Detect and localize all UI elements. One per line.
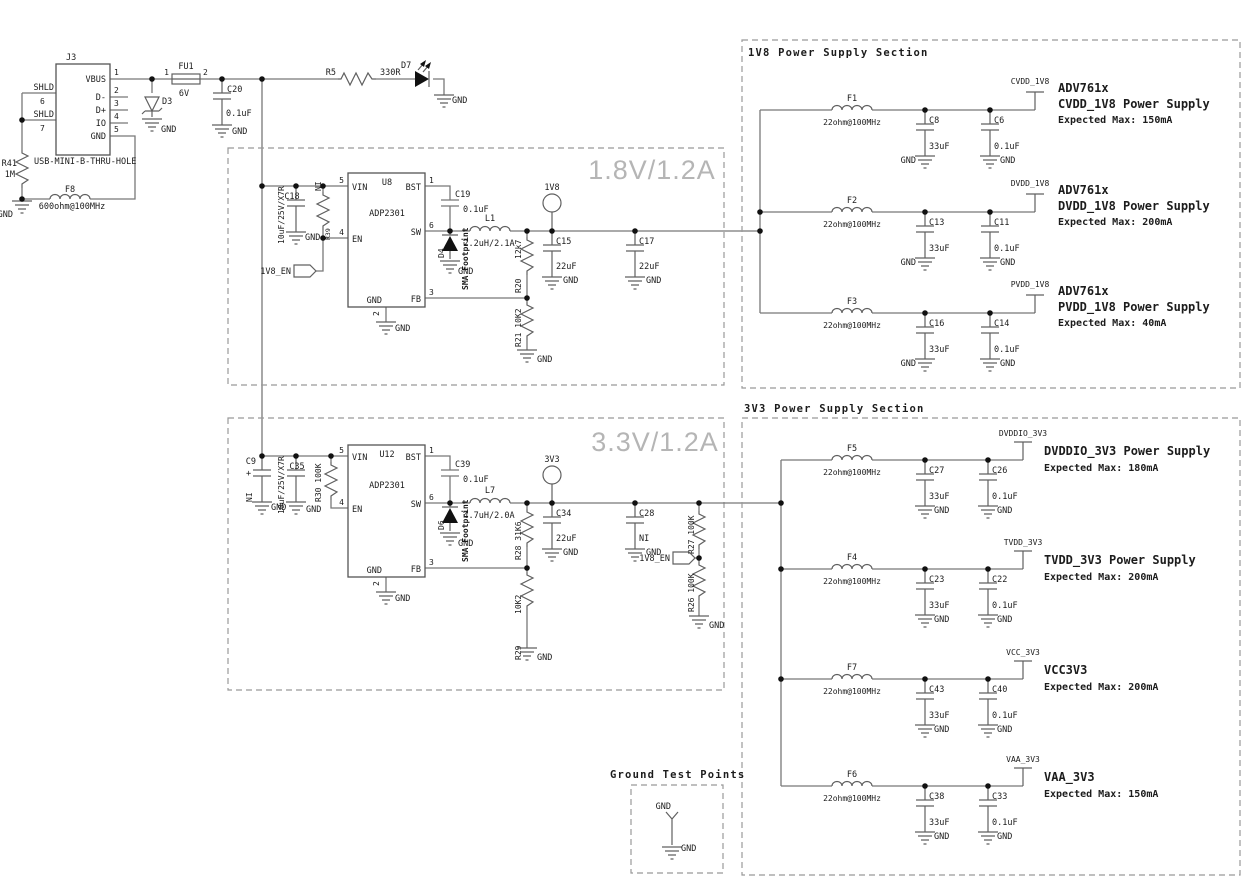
c16-ref: C16	[929, 319, 944, 329]
net-vcc-3v3-label: VCC_3V3	[1006, 648, 1040, 657]
d6-note: SMA Footprint	[460, 499, 470, 562]
gnd-label: GND	[934, 832, 949, 842]
c16-value: 33uF	[929, 345, 949, 355]
usb-pin-io: IO	[96, 119, 106, 129]
ferrite-f7	[832, 675, 872, 680]
net-flag-vcc-3v3	[1014, 661, 1032, 679]
c33-value: 0.1uF	[992, 818, 1018, 828]
f1-ref: F1	[847, 94, 857, 104]
r30-label: R30 100K	[314, 463, 323, 502]
r5-value: 330R	[380, 68, 401, 78]
f2-ref: F2	[847, 196, 857, 206]
fu1-value: 6V	[179, 89, 189, 99]
row1-desc-title: CVDD_1V8 Power Supply	[1058, 97, 1210, 112]
usb-pin5-num: 5	[114, 125, 119, 134]
ferrite-f8	[50, 195, 90, 200]
gnd-label: GND	[161, 125, 176, 135]
section-1v8-title: 1V8 Power Supply Section	[748, 47, 929, 59]
r5-ref: R5	[326, 68, 336, 78]
gnd-label: GND	[997, 725, 1012, 735]
c22-value: 0.1uF	[992, 601, 1018, 611]
gnd-label: GND	[901, 156, 916, 166]
c17-ref: C17	[639, 237, 654, 247]
net-dvddio-3v3-label: DVDDIO_3V3	[999, 429, 1047, 438]
r41-value: 1M	[5, 170, 15, 180]
c6-value: 0.1uF	[994, 142, 1020, 152]
schematic-page: J3 VBUS D- D+ IO GND 1 2 3 4 5 SHLD 6 SH…	[0, 0, 1248, 883]
net-flag-dvdd-1v8	[1026, 194, 1044, 212]
d4-ref: D4	[437, 248, 446, 258]
net-cvdd-1v8-label: CVDD_1V8	[1011, 77, 1050, 86]
c11-value: 0.1uF	[994, 244, 1020, 254]
ground-test-points: Ground Test Points GND GND	[610, 769, 745, 873]
c27-ref: C27	[929, 466, 944, 476]
gnd-label: GND	[395, 324, 410, 334]
c8-value: 33uF	[929, 142, 949, 152]
c23-ref: C23	[929, 575, 944, 585]
section-3v3: 3V3 Power Supply Section F5 22ohm@100MHz…	[742, 403, 1240, 875]
resistor-rni-1v8	[317, 192, 329, 230]
c39-value: 0.1uF	[463, 475, 489, 485]
ferrite-f5	[832, 456, 872, 461]
u8-pin3-num: 3	[429, 288, 434, 297]
gnd-label: GND	[901, 359, 916, 369]
net-flag-dvddio-3v3	[1014, 442, 1032, 460]
gnd-label: GND	[458, 267, 473, 277]
c23-value: 33uF	[929, 601, 949, 611]
row3-desc-title: PVDD_1V8 Power Supply	[1058, 300, 1210, 315]
c18-value: 10uF/25V/X7R	[277, 186, 286, 244]
c28-ref: C28	[639, 509, 654, 519]
gnd-testpoint	[666, 812, 678, 845]
c13-value: 33uF	[929, 244, 949, 254]
c34-ref: C34	[556, 509, 571, 519]
ground-symbol	[440, 261, 460, 273]
c20-value: 0.1uF	[226, 109, 252, 119]
gnd-label: GND	[997, 832, 1012, 842]
gnd-label: GND	[395, 594, 410, 604]
f8-value: 600ohm@100MHz	[39, 202, 106, 212]
usb-pin2-num: 2	[114, 86, 119, 95]
ground-symbol	[689, 616, 709, 628]
u8-pin-sw: SW	[411, 228, 422, 238]
net-dvdd-1v8-label: DVDD_1V8	[1011, 179, 1050, 188]
section-3v3-title: 3V3 Power Supply Section	[744, 403, 925, 415]
ferrite-f1	[832, 106, 872, 111]
gnd-label: GND	[997, 615, 1012, 625]
u8-part: ADP2301	[369, 209, 405, 219]
usb-pin4-num: 4	[114, 112, 119, 121]
c34-value: 22uF	[556, 534, 576, 544]
row3-desc-title: VCC3V3	[1044, 663, 1087, 677]
row2-desc-max: Expected Max: 200mA	[1058, 217, 1172, 228]
usb-footprint-label: USB-MINI-B-THRU-HOLE	[34, 157, 136, 167]
f7-value: 22ohm@100MHz	[823, 687, 881, 696]
ground-symbol	[434, 95, 454, 107]
gnd-label: GND	[537, 355, 552, 365]
inductor-l1	[470, 227, 510, 232]
c8-ref: C8	[929, 116, 939, 126]
r21-label: R21 10K2	[514, 308, 523, 347]
u12-pin-bst: BST	[406, 453, 421, 463]
row1-desc-max: Expected Max: 150mA	[1058, 115, 1172, 126]
f4-value: 22ohm@100MHz	[823, 577, 881, 586]
u12-pin-sw: SW	[411, 500, 422, 510]
gnd-label: GND	[232, 127, 247, 137]
gnd-label: GND	[997, 506, 1012, 516]
resistor-r41	[16, 150, 28, 188]
u12-pin1-num: 1	[429, 446, 434, 455]
c27-value: 33uF	[929, 492, 949, 502]
usb-ref-label: J3	[66, 53, 76, 63]
u12-pin4-num: 4	[339, 498, 344, 507]
f8-ref: F8	[65, 185, 75, 195]
gnd-label: GND	[934, 615, 949, 625]
c9-ref: C9	[246, 457, 256, 467]
c18-ref: C18	[284, 192, 299, 202]
gnd-label: GND	[709, 621, 724, 631]
c38-value: 33uF	[929, 818, 949, 828]
c19-ref: C19	[455, 190, 470, 200]
schematic-canvas: J3 VBUS D- D+ IO GND 1 2 3 4 5 SHLD 6 SH…	[0, 0, 1248, 883]
c14-value: 0.1uF	[994, 345, 1020, 355]
c17-value: 22uF	[639, 262, 659, 272]
net-flag-cvdd-1v8	[1026, 92, 1044, 110]
fu1-ref: FU1	[178, 62, 193, 72]
regulator-3v3: 3.3V/1.2A C9 + NI GND C35 10uF/25V/X7R G…	[228, 418, 781, 690]
u8-pin1-num: 1	[429, 176, 434, 185]
net-tvdd-3v3-label: TVDD_3V3	[1004, 538, 1043, 547]
l7-ref: L7	[485, 486, 495, 496]
r20-ref: R20	[514, 278, 523, 293]
row4-desc-max: Expected Max: 150mA	[1044, 789, 1158, 800]
f7-ref: F7	[847, 663, 857, 673]
fu1-pin2-num: 2	[203, 68, 208, 77]
row3-desc-max: Expected Max: 200mA	[1044, 682, 1158, 693]
ground-symbol	[12, 201, 32, 213]
f5-value: 22ohm@100MHz	[823, 468, 881, 477]
u8-pin-bst: BST	[406, 183, 421, 193]
net-1v8-en-label: 1V8_EN	[260, 267, 291, 277]
ferrite-f4	[832, 565, 872, 570]
usb-pin-dm: D-	[96, 93, 106, 103]
c26-ref: C26	[992, 466, 1007, 476]
c26-value: 0.1uF	[992, 492, 1018, 502]
u12-part: ADP2301	[369, 481, 405, 491]
row1-desc-part: ADV761x	[1058, 81, 1109, 95]
c6-ref: C6	[994, 116, 1004, 126]
c13-ref: C13	[929, 218, 944, 228]
l7-value: 4.7uH/2.0A	[463, 511, 514, 521]
d4-note: SMA Footprint	[460, 227, 470, 290]
u8-pin-en: EN	[352, 235, 362, 245]
inductor-l7	[470, 499, 510, 504]
row2-desc-title: TVDD_3V3 Power Supply	[1044, 553, 1196, 568]
gnd-label: GND	[306, 505, 321, 515]
wires-sec1v8	[760, 110, 1035, 313]
ground-symbol	[376, 322, 396, 334]
ground-symbol	[376, 592, 396, 604]
c35-value: 10uF/25V/X7R	[277, 456, 286, 514]
wires-reg18	[262, 186, 760, 350]
c43-ref: C43	[929, 685, 944, 695]
d3-ref: D3	[162, 97, 172, 107]
d7-ref: D7	[401, 61, 411, 71]
usb-pin7-num: 7	[40, 124, 45, 133]
row2-desc-part: ADV761x	[1058, 183, 1109, 197]
f4-ref: F4	[847, 553, 857, 563]
testpoint-1v8-label: 1V8	[544, 183, 559, 193]
u8-pin-fb: FB	[411, 295, 421, 305]
row1-desc-max: Expected Max: 180mA	[1044, 463, 1158, 474]
c28-value: NI	[639, 534, 649, 544]
u8-pin2-num: 2	[372, 311, 381, 316]
ground-symbol	[142, 119, 162, 131]
r27-label: R27 100K	[687, 515, 696, 554]
net-flag-tvdd-3v3	[1014, 551, 1032, 569]
testpoint-3v3	[543, 466, 561, 503]
usb-pin-shld2: SHLD	[34, 110, 54, 120]
c9-plus: +	[246, 469, 251, 479]
row3-desc-part: ADV761x	[1058, 284, 1109, 298]
u8-pin-vin: VIN	[352, 183, 367, 193]
u12-pin3-num: 3	[429, 558, 434, 567]
f3-value: 22ohm@100MHz	[823, 321, 881, 330]
c9-value: NI	[245, 492, 254, 502]
gndtp-title: Ground Test Points	[610, 769, 745, 781]
gnd-label: GND	[537, 653, 552, 663]
c38-ref: C38	[929, 792, 944, 802]
net-1v8-en-label: 1V8_EN	[639, 554, 670, 564]
testpoint-3v3-label: 3V3	[544, 455, 559, 465]
ground-symbol	[440, 533, 460, 545]
gnd-label: GND	[0, 210, 13, 220]
fu1-pin1-num: 1	[164, 68, 169, 77]
r20-value: 12k7	[514, 240, 523, 259]
c22-ref: C22	[992, 575, 1007, 585]
gnd-label: GND	[681, 844, 696, 854]
net-flag-1v8-en	[294, 265, 316, 277]
ferrite-f3	[832, 309, 872, 314]
u8-pin4-num: 4	[339, 228, 344, 237]
u12-ref: U12	[379, 450, 394, 460]
usb-pin1-num: 1	[114, 68, 119, 77]
f1-value: 22ohm@100MHz	[823, 118, 881, 127]
c40-ref: C40	[992, 685, 1007, 695]
u12-pin5-num: 5	[339, 446, 344, 455]
ferrite-f2	[832, 208, 872, 213]
usb-pin-vbus: VBUS	[86, 75, 106, 85]
usb-pin6-num: 6	[40, 97, 45, 106]
gnd-label: GND	[452, 96, 467, 106]
ground-symbol	[662, 847, 682, 859]
u12-pin2-num: 2	[372, 581, 381, 586]
row2-desc-title: DVDD_1V8 Power Supply	[1058, 199, 1210, 214]
f5-ref: F5	[847, 444, 857, 454]
row3-desc-max: Expected Max: 40mA	[1058, 318, 1166, 329]
gnd-label: GND	[646, 276, 661, 286]
f6-ref: F6	[847, 770, 857, 780]
u12-pin-en: EN	[352, 505, 362, 515]
gnd-label: GND	[934, 725, 949, 735]
u8-pin6-num: 6	[429, 221, 434, 230]
gnd-label: GND	[1000, 258, 1015, 268]
gnd-label: GND	[934, 506, 949, 516]
diode-d3	[145, 97, 159, 111]
u8-pin-gnd: GND	[367, 296, 382, 306]
junction-dots	[19, 76, 993, 789]
c33-ref: C33	[992, 792, 1007, 802]
regulator-1v8: 1.8V/1.2A C18 10uF/25V/X7R GND NI R39 1V…	[228, 148, 760, 385]
l1-value: 2.2uH/2.1A	[463, 239, 514, 249]
d6-ref: D6	[437, 520, 446, 530]
gnd-label: GND	[1000, 359, 1015, 369]
regulator-3v3-title: 3.3V/1.2A	[591, 427, 719, 457]
usb-pin-shld1: SHLD	[34, 83, 54, 93]
gndtp-label: GND	[656, 802, 671, 812]
resistor-r5	[338, 73, 376, 85]
net-vaa-3v3-label: VAA_3V3	[1006, 755, 1040, 764]
u8-ref: U8	[382, 178, 392, 188]
ferrite-f6	[832, 782, 872, 787]
u12-pin-vin: VIN	[352, 453, 367, 463]
c15-ref: C15	[556, 237, 571, 247]
gnd-label: GND	[563, 548, 578, 558]
f2-value: 22ohm@100MHz	[823, 220, 881, 229]
net-pvdd-1v8-label: PVDD_1V8	[1011, 280, 1050, 289]
resistor-r30	[325, 462, 337, 500]
f3-ref: F3	[847, 297, 857, 307]
testpoint-1v8	[543, 194, 561, 231]
c40-value: 0.1uF	[992, 711, 1018, 721]
usb-pin-gnd: GND	[91, 132, 106, 142]
ground-symbol	[517, 350, 537, 362]
diode-d3-cathode	[142, 108, 162, 117]
gndtp-border	[631, 785, 723, 873]
r41-ref: R41	[2, 159, 17, 169]
c43-value: 33uF	[929, 711, 949, 721]
gnd-label: GND	[901, 258, 916, 268]
c14-ref: C14	[994, 319, 1009, 329]
led-d7	[415, 71, 429, 87]
l1-ref: L1	[485, 214, 495, 224]
r26-label: R26 100K	[687, 573, 696, 612]
usb-input-stage: J3 VBUS D- D+ IO GND 1 2 3 4 5 SHLD 6 SH…	[0, 53, 467, 456]
r29-value: 10K2	[514, 595, 523, 614]
row4-desc-title: VAA_3V3	[1044, 770, 1095, 785]
u8-pin5-num: 5	[339, 176, 344, 185]
u12-pin6-num: 6	[429, 493, 434, 502]
net-flag-vaa-3v3	[1014, 768, 1032, 786]
gnd-label: GND	[305, 233, 320, 243]
row1-desc-title: DVDDIO_3V3 Power Supply	[1044, 444, 1210, 459]
u12-pin-fb: FB	[411, 565, 421, 575]
c35-ref: C35	[289, 462, 304, 472]
row2-desc-max: Expected Max: 200mA	[1044, 572, 1158, 583]
regulator-1v8-title: 1.8V/1.2A	[588, 155, 716, 185]
u12-pin-gnd: GND	[367, 566, 382, 576]
fuse-fu1	[172, 74, 200, 84]
gnd-label: GND	[563, 276, 578, 286]
c39-ref: C39	[455, 460, 470, 470]
f6-value: 22ohm@100MHz	[823, 794, 881, 803]
usb-pin-dp: D+	[96, 106, 106, 116]
r28-label: R28 31K6	[514, 521, 523, 560]
c11-ref: C11	[994, 218, 1009, 228]
net-flag-pvdd-1v8	[1026, 295, 1044, 313]
c15-value: 22uF	[556, 262, 576, 272]
gnd-label: GND	[458, 539, 473, 549]
usb-pin3-num: 3	[114, 99, 119, 108]
gnd-label: GND	[1000, 156, 1015, 166]
c20-ref: C20	[227, 85, 242, 95]
